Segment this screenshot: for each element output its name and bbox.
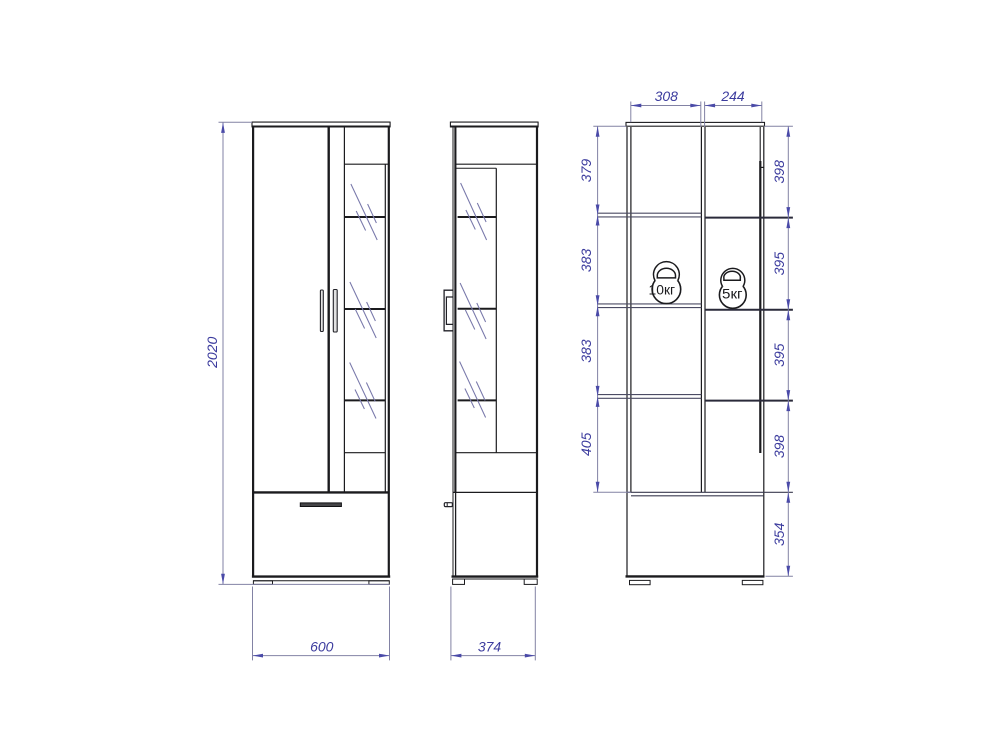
svg-text:2020: 2020 [204, 337, 220, 369]
svg-text:379: 379 [578, 159, 594, 183]
svg-text:308: 308 [655, 88, 679, 104]
svg-text:10кг: 10кг [649, 282, 676, 298]
svg-text:354: 354 [771, 522, 787, 546]
svg-text:383: 383 [578, 249, 594, 273]
svg-text:5кг: 5кг [722, 286, 743, 301]
svg-text:600: 600 [310, 638, 334, 654]
svg-text:374: 374 [478, 638, 502, 654]
svg-text:395: 395 [771, 343, 787, 367]
svg-text:405: 405 [578, 432, 594, 456]
svg-text:244: 244 [720, 88, 745, 104]
svg-text:395: 395 [771, 252, 787, 276]
svg-text:398: 398 [771, 160, 787, 184]
svg-text:383: 383 [578, 339, 594, 363]
svg-text:398: 398 [771, 435, 787, 459]
